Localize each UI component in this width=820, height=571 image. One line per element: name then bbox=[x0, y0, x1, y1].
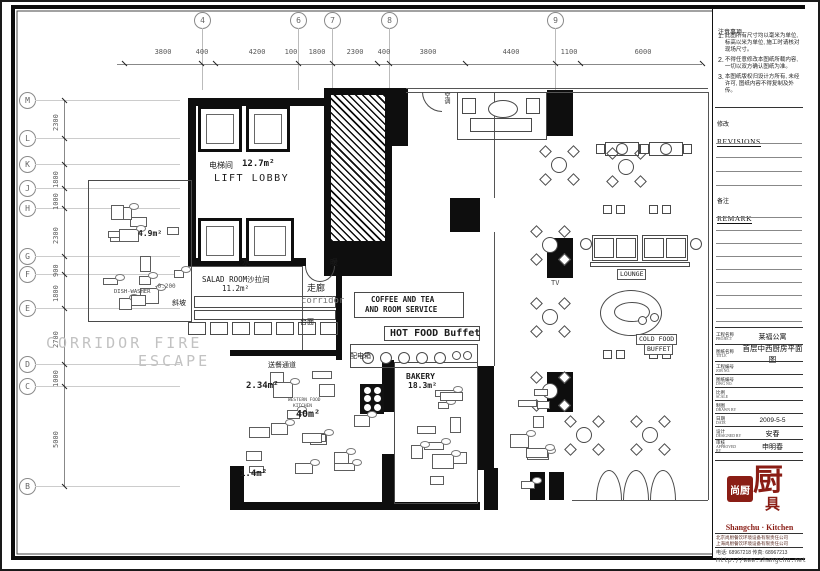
divider bbox=[715, 547, 803, 548]
dimension-label: 400 bbox=[373, 48, 395, 56]
rule-line bbox=[716, 171, 802, 172]
counter-well bbox=[416, 352, 428, 364]
wall-segment bbox=[392, 88, 408, 146]
grid-bubble-B: B bbox=[19, 478, 36, 495]
wall-segment bbox=[230, 350, 338, 356]
grid-bubble-D: D bbox=[19, 356, 36, 373]
row-label-en: JOB NO. bbox=[716, 369, 742, 373]
wall-line bbox=[572, 500, 708, 501]
kitchen-equipment bbox=[417, 426, 436, 435]
room-label: 11.2m² bbox=[222, 285, 249, 293]
dimension-label: 6000 bbox=[632, 48, 654, 56]
fixture-ellipse bbox=[650, 313, 659, 322]
row-value: 安春 bbox=[742, 429, 803, 439]
dimension-label: 1000 bbox=[52, 193, 60, 210]
grid-bubble-7: 7 bbox=[324, 12, 341, 29]
counter-well bbox=[463, 351, 472, 360]
room-label: 送餐通道 bbox=[268, 362, 296, 369]
equipment-tag bbox=[420, 441, 430, 448]
dining-table-round bbox=[618, 159, 634, 175]
title-block-row: 工程编号JOB NO. bbox=[715, 361, 803, 375]
chair bbox=[662, 205, 671, 214]
room-label: 18.3m² bbox=[408, 382, 437, 390]
counter-well bbox=[398, 352, 410, 364]
dining-chair bbox=[606, 175, 619, 188]
equipment-tag bbox=[285, 419, 295, 426]
kitchen-equipment bbox=[140, 256, 151, 271]
fixture-outline bbox=[590, 262, 690, 267]
dining-chair bbox=[640, 144, 649, 154]
wall-segment bbox=[382, 454, 394, 510]
chair bbox=[649, 205, 658, 214]
dining-chair bbox=[539, 173, 552, 186]
dining-chair bbox=[530, 253, 543, 266]
room-label: COFFEE AND TEA bbox=[371, 296, 434, 304]
dimension-label: 1000 bbox=[52, 370, 60, 387]
room-label: AND ROOM SERVICE bbox=[365, 306, 437, 314]
title-block-row: 图纸编号DWG NO. bbox=[715, 374, 803, 388]
title-block-row: 图纸名称TITLE首层中西厨房平面图 bbox=[715, 344, 803, 362]
equipment-tag bbox=[441, 438, 451, 445]
revisions-cn: 修改 bbox=[717, 122, 729, 128]
grid-line bbox=[35, 138, 180, 139]
row-label-en: DWG NO. bbox=[716, 382, 742, 386]
kitchen-equipment bbox=[440, 392, 463, 401]
room-label: DISH-WASHER bbox=[114, 290, 150, 296]
grid-line bbox=[555, 28, 556, 90]
dining-chair bbox=[683, 144, 692, 154]
dimension-label: 100 bbox=[280, 48, 302, 56]
wall-segment bbox=[336, 268, 342, 360]
rule-line bbox=[716, 217, 802, 218]
grid-line bbox=[202, 28, 203, 90]
divider bbox=[715, 107, 803, 108]
logo-big-char: 厨 bbox=[753, 466, 783, 496]
dimension-label: 900 bbox=[52, 264, 60, 277]
kitchen-equipment bbox=[518, 400, 537, 407]
rule-line bbox=[716, 143, 802, 144]
grid-bubble-H: H bbox=[19, 200, 36, 217]
fixture-outline bbox=[666, 238, 686, 258]
room-label: WESTERN FOOD bbox=[288, 399, 321, 404]
row-value: 莱福公寓 bbox=[742, 332, 803, 342]
kitchen-equipment bbox=[319, 384, 334, 397]
grid-bubble-G: G bbox=[19, 248, 36, 265]
title-block-row: 审核APPROVED BY申明春 bbox=[715, 439, 803, 453]
dining-chair bbox=[567, 173, 580, 186]
room-label: COLD FOOD bbox=[636, 334, 677, 345]
notes-list: 1.此图所有尺寸均以毫米为单位, 标高以米为单位, 施工时请核对现场尺寸。2.不… bbox=[718, 33, 800, 98]
room-label: 暖 bbox=[330, 259, 338, 267]
room-label: -0.200 bbox=[154, 284, 176, 290]
title-block-row: 比例SCALE bbox=[715, 387, 803, 401]
row-label: 图纸编号DWG NO. bbox=[715, 377, 742, 386]
grid-bubble-K: K bbox=[19, 156, 36, 173]
kitchen-equipment bbox=[111, 205, 124, 220]
room-label: 走廊 bbox=[307, 285, 325, 294]
kitchen-equipment bbox=[533, 416, 544, 428]
room-label: 2.34m² bbox=[246, 382, 279, 391]
rule-line bbox=[716, 282, 802, 283]
kitchen-equipment bbox=[271, 423, 287, 435]
logo-seal: 尚厨 bbox=[727, 476, 753, 502]
room-label: BUFFET bbox=[644, 344, 673, 355]
fixture-ellipse bbox=[690, 238, 702, 250]
row-label: 图纸名称TITLE bbox=[715, 349, 742, 358]
row-label-en: DRAWN BY bbox=[716, 408, 742, 412]
equipment-tag bbox=[532, 477, 542, 484]
fixture-outline bbox=[462, 98, 476, 114]
door-arc bbox=[305, 266, 335, 282]
dining-chair bbox=[634, 175, 647, 188]
grid-bubble-M: M bbox=[19, 92, 36, 109]
room-label: 4.9m² bbox=[138, 230, 162, 238]
kitchen-equipment bbox=[246, 451, 262, 461]
rule-line bbox=[716, 230, 802, 231]
kitchen-equipment bbox=[537, 401, 550, 409]
kitchen-equipment bbox=[167, 227, 179, 235]
shaft-hatch bbox=[331, 95, 385, 241]
dining-chair bbox=[630, 443, 643, 456]
room-label: SALAD ROOM沙拉间 bbox=[202, 276, 270, 284]
kitchen-equipment bbox=[302, 433, 322, 443]
table-center bbox=[616, 143, 628, 155]
fixture-outline bbox=[320, 322, 338, 335]
row-label-en: TITLE bbox=[716, 354, 742, 358]
dining-chair bbox=[558, 297, 571, 310]
logo-sub-char: 具 bbox=[765, 498, 780, 513]
kitchen-equipment bbox=[312, 371, 332, 379]
equipment-tag bbox=[526, 430, 536, 437]
grid-line bbox=[35, 164, 180, 165]
dining-chair bbox=[564, 415, 577, 428]
wall-segment bbox=[549, 472, 564, 500]
grid-line bbox=[332, 28, 333, 90]
equipment-tag bbox=[148, 272, 158, 279]
dining-chair bbox=[592, 415, 605, 428]
equipment-tag bbox=[290, 378, 300, 385]
lift-car bbox=[246, 106, 290, 152]
row-label-en: DESIGNED BY bbox=[716, 434, 742, 438]
dimension-label: 2300 bbox=[52, 227, 60, 244]
dining-chair bbox=[530, 371, 543, 384]
grid-bubble-9: 9 bbox=[547, 12, 564, 29]
room-label: BAKERY bbox=[406, 373, 435, 381]
rule-line bbox=[716, 295, 802, 296]
lift-car-inner bbox=[254, 226, 286, 256]
room-label: corridor bbox=[301, 297, 344, 306]
equipment-tag bbox=[310, 459, 320, 466]
wall-segment bbox=[547, 90, 573, 136]
room-label: 配电箱 bbox=[350, 353, 371, 360]
website-url: Http://www.shangchu.net bbox=[716, 556, 806, 564]
lift-car-inner bbox=[206, 114, 234, 144]
dimension-label: 3800 bbox=[417, 48, 439, 56]
grid-bubble-E: E bbox=[19, 300, 36, 317]
title-block-row: 设计DESIGNED BY安春 bbox=[715, 426, 803, 440]
room-label: ESCAPE bbox=[138, 354, 210, 369]
equipment-tag bbox=[367, 411, 377, 418]
lift-car bbox=[246, 218, 294, 264]
fixture-outline bbox=[194, 310, 336, 320]
room-label: 40m² bbox=[296, 410, 320, 420]
dimension-label: 1800 bbox=[306, 48, 328, 56]
fixture-outline bbox=[526, 98, 540, 114]
dining-chair bbox=[558, 325, 571, 338]
kitchen-equipment bbox=[430, 476, 444, 485]
kitchen-equipment bbox=[432, 454, 454, 469]
dining-chair bbox=[658, 443, 671, 456]
dimension-label: 4200 bbox=[246, 48, 268, 56]
note-item: 2.不得任意修改本图纸所载内容, 一切以双方确认图纸为准。 bbox=[718, 57, 800, 71]
room-label: 1.4m² bbox=[240, 470, 267, 479]
room-label: TV bbox=[551, 280, 559, 287]
drawing-sheet: 4678938004004200100180023004003800440011… bbox=[0, 0, 820, 571]
equipment-tag bbox=[352, 459, 362, 466]
dining-chair bbox=[530, 225, 543, 238]
rule-line bbox=[716, 269, 802, 270]
fixture-outline bbox=[594, 238, 614, 258]
wall-line bbox=[302, 266, 303, 350]
wall-segment bbox=[478, 366, 494, 470]
counter-well bbox=[434, 352, 446, 364]
kitchen-equipment bbox=[119, 229, 138, 242]
dining-table-round bbox=[542, 309, 558, 325]
dining-chair bbox=[558, 225, 571, 238]
door-arc bbox=[596, 470, 622, 500]
rule-line bbox=[716, 308, 802, 309]
rule-line bbox=[716, 256, 802, 257]
kitchen-equipment bbox=[249, 427, 270, 439]
door-arc bbox=[422, 92, 442, 112]
row-value: 申明春 bbox=[742, 442, 803, 452]
kitchen-equipment bbox=[295, 463, 313, 474]
dining-chair bbox=[567, 145, 580, 158]
phone-fax-line: 电话: 68967218 传真: 68967213 bbox=[716, 549, 787, 556]
grid-bubble-L: L bbox=[19, 130, 36, 147]
lift-car-inner bbox=[254, 114, 282, 144]
grid-line bbox=[35, 486, 180, 487]
kitchen-equipment bbox=[534, 389, 547, 396]
room-label: 电梯间 bbox=[209, 162, 233, 170]
grid-line bbox=[298, 28, 299, 90]
dimension-label: 1800 bbox=[52, 285, 60, 302]
door-arc bbox=[650, 470, 676, 500]
counter-well bbox=[452, 351, 461, 360]
remark-en: REMARK bbox=[717, 214, 752, 224]
fixture-outline bbox=[276, 322, 294, 335]
room-label: LOUNGE bbox=[617, 269, 646, 280]
row-label: 设计DESIGNED BY bbox=[715, 429, 742, 438]
dimension-label: 5000 bbox=[52, 431, 60, 448]
dining-table-round bbox=[642, 427, 658, 443]
dimension-label: 1800 bbox=[52, 171, 60, 188]
fixture-outline bbox=[616, 238, 636, 258]
equipment-tag bbox=[451, 450, 461, 457]
row-label-en: SCALE bbox=[716, 395, 742, 399]
dining-chair bbox=[530, 325, 543, 338]
fixture-outline bbox=[232, 322, 250, 335]
remark-cn: 备注 bbox=[717, 199, 729, 205]
note-item: 3.本图纸版权归设计方所有, 未经许可, 图纸内容不得复制及外传。 bbox=[718, 74, 800, 95]
row-value: 2009-5-5 bbox=[742, 417, 803, 424]
grid-bubble-F: F bbox=[19, 266, 36, 283]
rule-line bbox=[716, 185, 802, 186]
chair bbox=[603, 350, 612, 359]
rule-line bbox=[716, 321, 802, 322]
grid-line bbox=[35, 100, 180, 101]
wall-line bbox=[494, 232, 495, 366]
fixture-ellipse bbox=[638, 316, 647, 325]
room-label: HOT FOOD Buffet bbox=[390, 329, 480, 339]
wall-segment bbox=[484, 468, 498, 510]
divider bbox=[715, 460, 803, 461]
room-label: 斜坡 bbox=[172, 300, 186, 307]
door-arc bbox=[623, 470, 649, 500]
title-block-panel: 注意事项 1.此图所有尺寸均以毫米为单位, 标高以米为单位, 施工时请核对现场尺… bbox=[712, 9, 806, 558]
fixture-ellipse bbox=[488, 100, 518, 118]
lift-car bbox=[198, 218, 242, 264]
grid-bubble-6: 6 bbox=[290, 12, 307, 29]
rule-line bbox=[716, 243, 802, 244]
fixture-outline bbox=[644, 238, 664, 258]
dining-chair bbox=[564, 443, 577, 456]
title-block-row: 制图DRAWN BY bbox=[715, 400, 803, 414]
grid-bubble-8: 8 bbox=[381, 12, 398, 29]
grid-bubble-4: 4 bbox=[194, 12, 211, 29]
kitchen-equipment bbox=[510, 434, 529, 448]
dining-chair bbox=[592, 443, 605, 456]
dining-chair bbox=[630, 415, 643, 428]
counter-well bbox=[380, 352, 392, 364]
wall-line bbox=[406, 88, 708, 89]
row-label: 工程名称PROJECT bbox=[715, 332, 742, 341]
fixture-outline bbox=[210, 322, 228, 335]
wall-line bbox=[708, 92, 709, 500]
chair bbox=[616, 205, 625, 214]
kitchen-equipment bbox=[131, 295, 146, 306]
dimension-label: 400 bbox=[191, 48, 213, 56]
room-label: 12.7m² bbox=[242, 160, 275, 169]
row-label-en: DATE bbox=[716, 421, 742, 425]
dining-table-round bbox=[551, 157, 567, 173]
wall-segment bbox=[290, 98, 324, 106]
dimension-label: 2300 bbox=[344, 48, 366, 56]
table-center bbox=[660, 143, 672, 155]
wall-segment bbox=[450, 198, 480, 232]
grid-bubble-J: J bbox=[19, 180, 36, 197]
rule-line bbox=[716, 157, 802, 158]
dining-chair bbox=[539, 145, 552, 158]
grid-line bbox=[389, 28, 390, 90]
revisions-en: REVISIONS bbox=[717, 137, 761, 147]
floor-plan: 4678938004004200100180023004003800440011… bbox=[2, 2, 712, 571]
row-label: 比例SCALE bbox=[715, 390, 742, 399]
room-label: 水 bbox=[242, 259, 250, 267]
fixture-outline bbox=[470, 118, 532, 132]
room-label: 空调 bbox=[443, 92, 449, 104]
kitchen-equipment bbox=[526, 448, 548, 458]
dimension-label: 1100 bbox=[558, 48, 580, 56]
room-label: CORRIDOR FIRE bbox=[46, 336, 202, 351]
dimension-label: 3800 bbox=[152, 48, 174, 56]
dimension-label: 2300 bbox=[52, 114, 60, 131]
row-label-en: PROJECT bbox=[716, 337, 742, 341]
range-burners bbox=[360, 384, 384, 414]
divider bbox=[715, 533, 803, 534]
note-item: 1.此图所有尺寸均以毫米为单位, 标高以米为单位, 施工时请核对现场尺寸。 bbox=[718, 33, 800, 54]
lift-car-inner bbox=[206, 226, 234, 256]
grid-bubble-C: C bbox=[19, 378, 36, 395]
chair bbox=[603, 205, 612, 214]
row-label: 制图DRAWN BY bbox=[715, 403, 742, 412]
table-bottom-line bbox=[715, 452, 803, 453]
company-logo: 厨 尚厨 具 bbox=[713, 464, 806, 524]
chair bbox=[616, 350, 625, 359]
title-block-row: 日期DATE2009-5-5 bbox=[715, 413, 803, 427]
dimension-label: 4400 bbox=[500, 48, 522, 56]
row-label: 日期DATE bbox=[715, 416, 742, 425]
lift-car bbox=[198, 106, 242, 152]
dining-chair bbox=[596, 144, 605, 154]
dining-chair bbox=[530, 297, 543, 310]
kitchen-equipment bbox=[450, 417, 461, 433]
fixture-outline bbox=[254, 322, 272, 335]
room-label: LIFT LOBBY bbox=[214, 174, 289, 184]
fixture-ellipse bbox=[580, 238, 592, 250]
equipment-tag bbox=[346, 448, 356, 455]
dim-line bbox=[117, 64, 702, 65]
dining-table-round bbox=[542, 237, 558, 253]
dim-line bbox=[64, 100, 65, 487]
row-label: 工程编号JOB NO. bbox=[715, 364, 742, 373]
wall-line bbox=[406, 92, 708, 93]
room-label: 台面 bbox=[300, 319, 314, 326]
dining-chair bbox=[658, 415, 671, 428]
remark-header: 备注 REMARK bbox=[717, 190, 752, 226]
equipment-tag bbox=[129, 203, 139, 210]
company-lines: 北京尚厨餐饮环境设备有限责任公司上海尚厨餐饮环境设备有限责任公司 bbox=[716, 535, 803, 547]
logo-name: Shangchu · Kitchen bbox=[713, 523, 806, 532]
dining-table-round bbox=[576, 427, 592, 443]
